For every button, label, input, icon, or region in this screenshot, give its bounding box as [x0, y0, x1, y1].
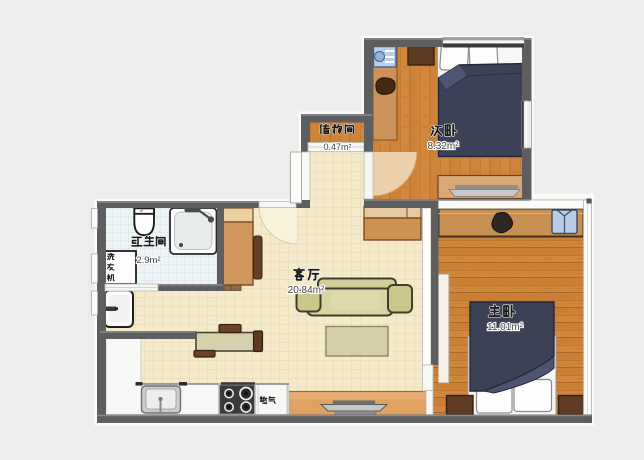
- svg-text:11.01m²: 11.01m²: [487, 322, 524, 333]
- svg-text:8.32m²: 8.32m²: [427, 141, 459, 152]
- svg-text:0.47m²: 0.47m²: [323, 142, 351, 152]
- svg-text:20.84m²: 20.84m²: [288, 285, 325, 296]
- svg-text:2.9m²: 2.9m²: [136, 255, 160, 266]
